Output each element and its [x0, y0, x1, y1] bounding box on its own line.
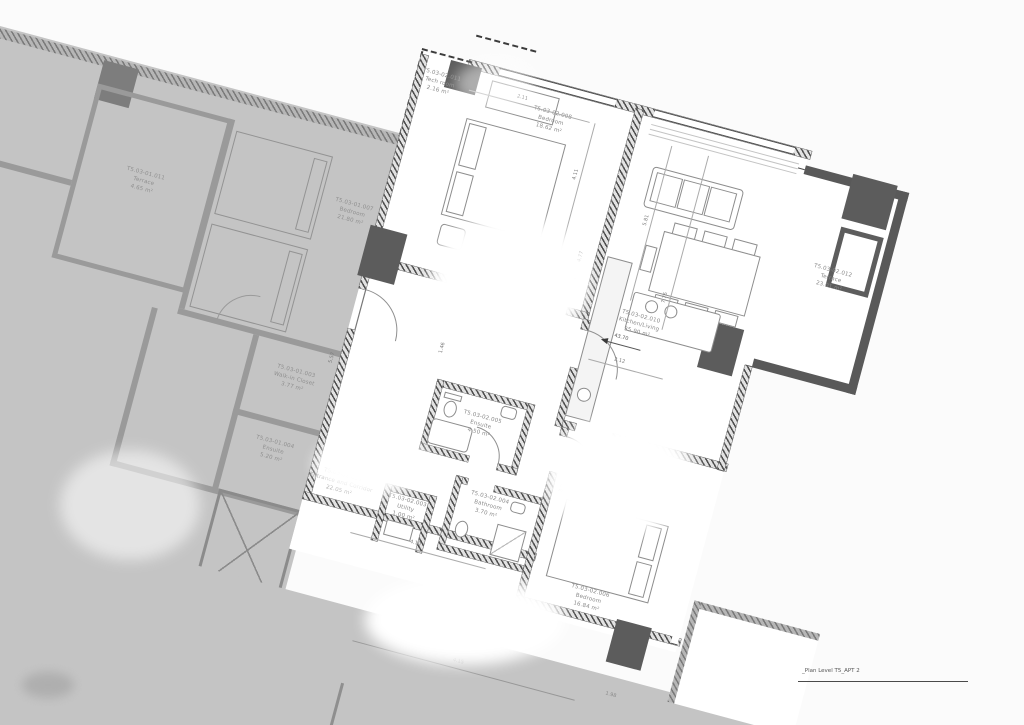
white-smudge [365, 575, 565, 665]
footer-note: _Plan Level T5_APT 2 [802, 668, 860, 674]
white-smudge [430, 215, 590, 345]
demising-dashed-line [476, 35, 536, 53]
floorplan-canvas: T5.03-01.011 Terrace 4.65 m² T5.03-01.00… [0, 0, 1024, 725]
white-smudge [315, 435, 430, 495]
white-smudge [60, 450, 200, 560]
footer-line [798, 681, 968, 682]
page-mark-smudge [22, 672, 74, 698]
white-smudge [545, 420, 695, 535]
white-smudge [455, 60, 535, 108]
